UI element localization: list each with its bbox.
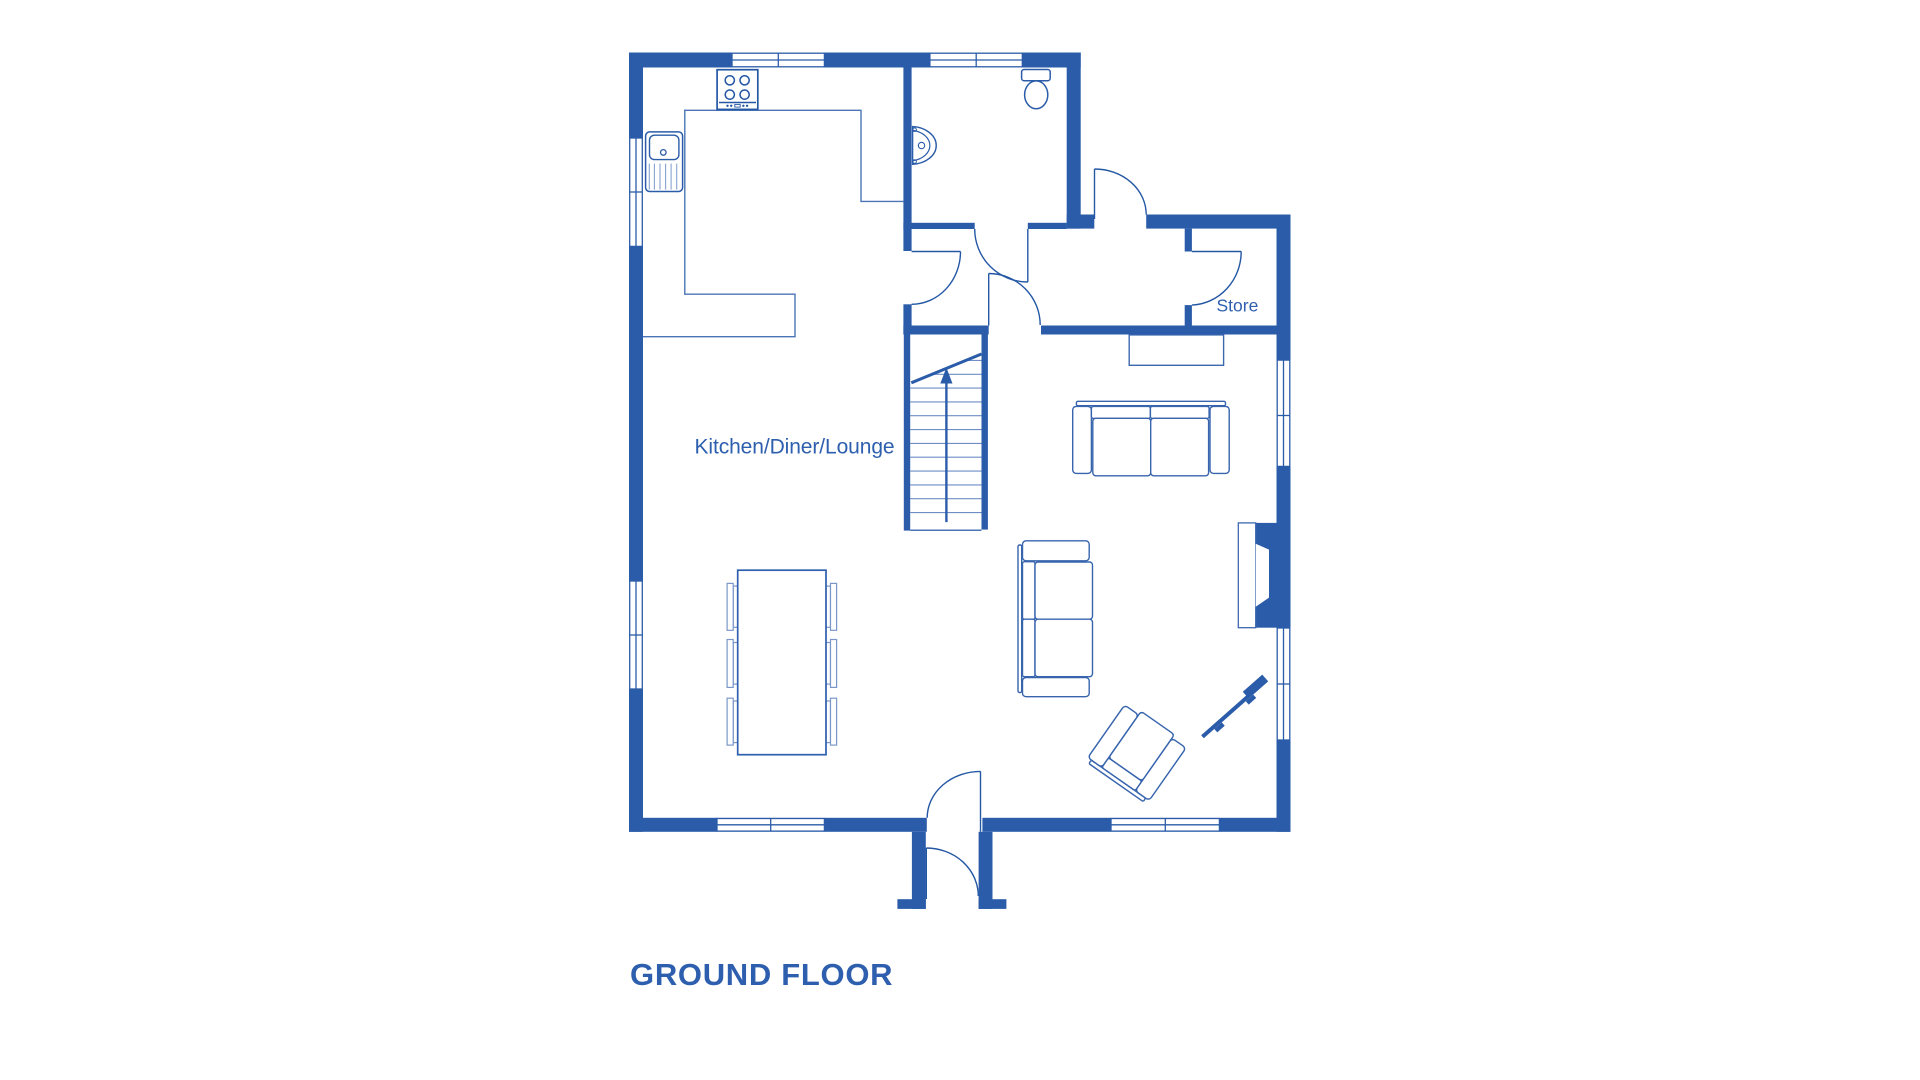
svg-text:Kitchen/Diner/Lounge: Kitchen/Diner/Lounge: [695, 436, 895, 459]
svg-text:Store: Store: [1217, 296, 1259, 316]
svg-text:GROUND FLOOR: GROUND FLOOR: [630, 957, 893, 992]
